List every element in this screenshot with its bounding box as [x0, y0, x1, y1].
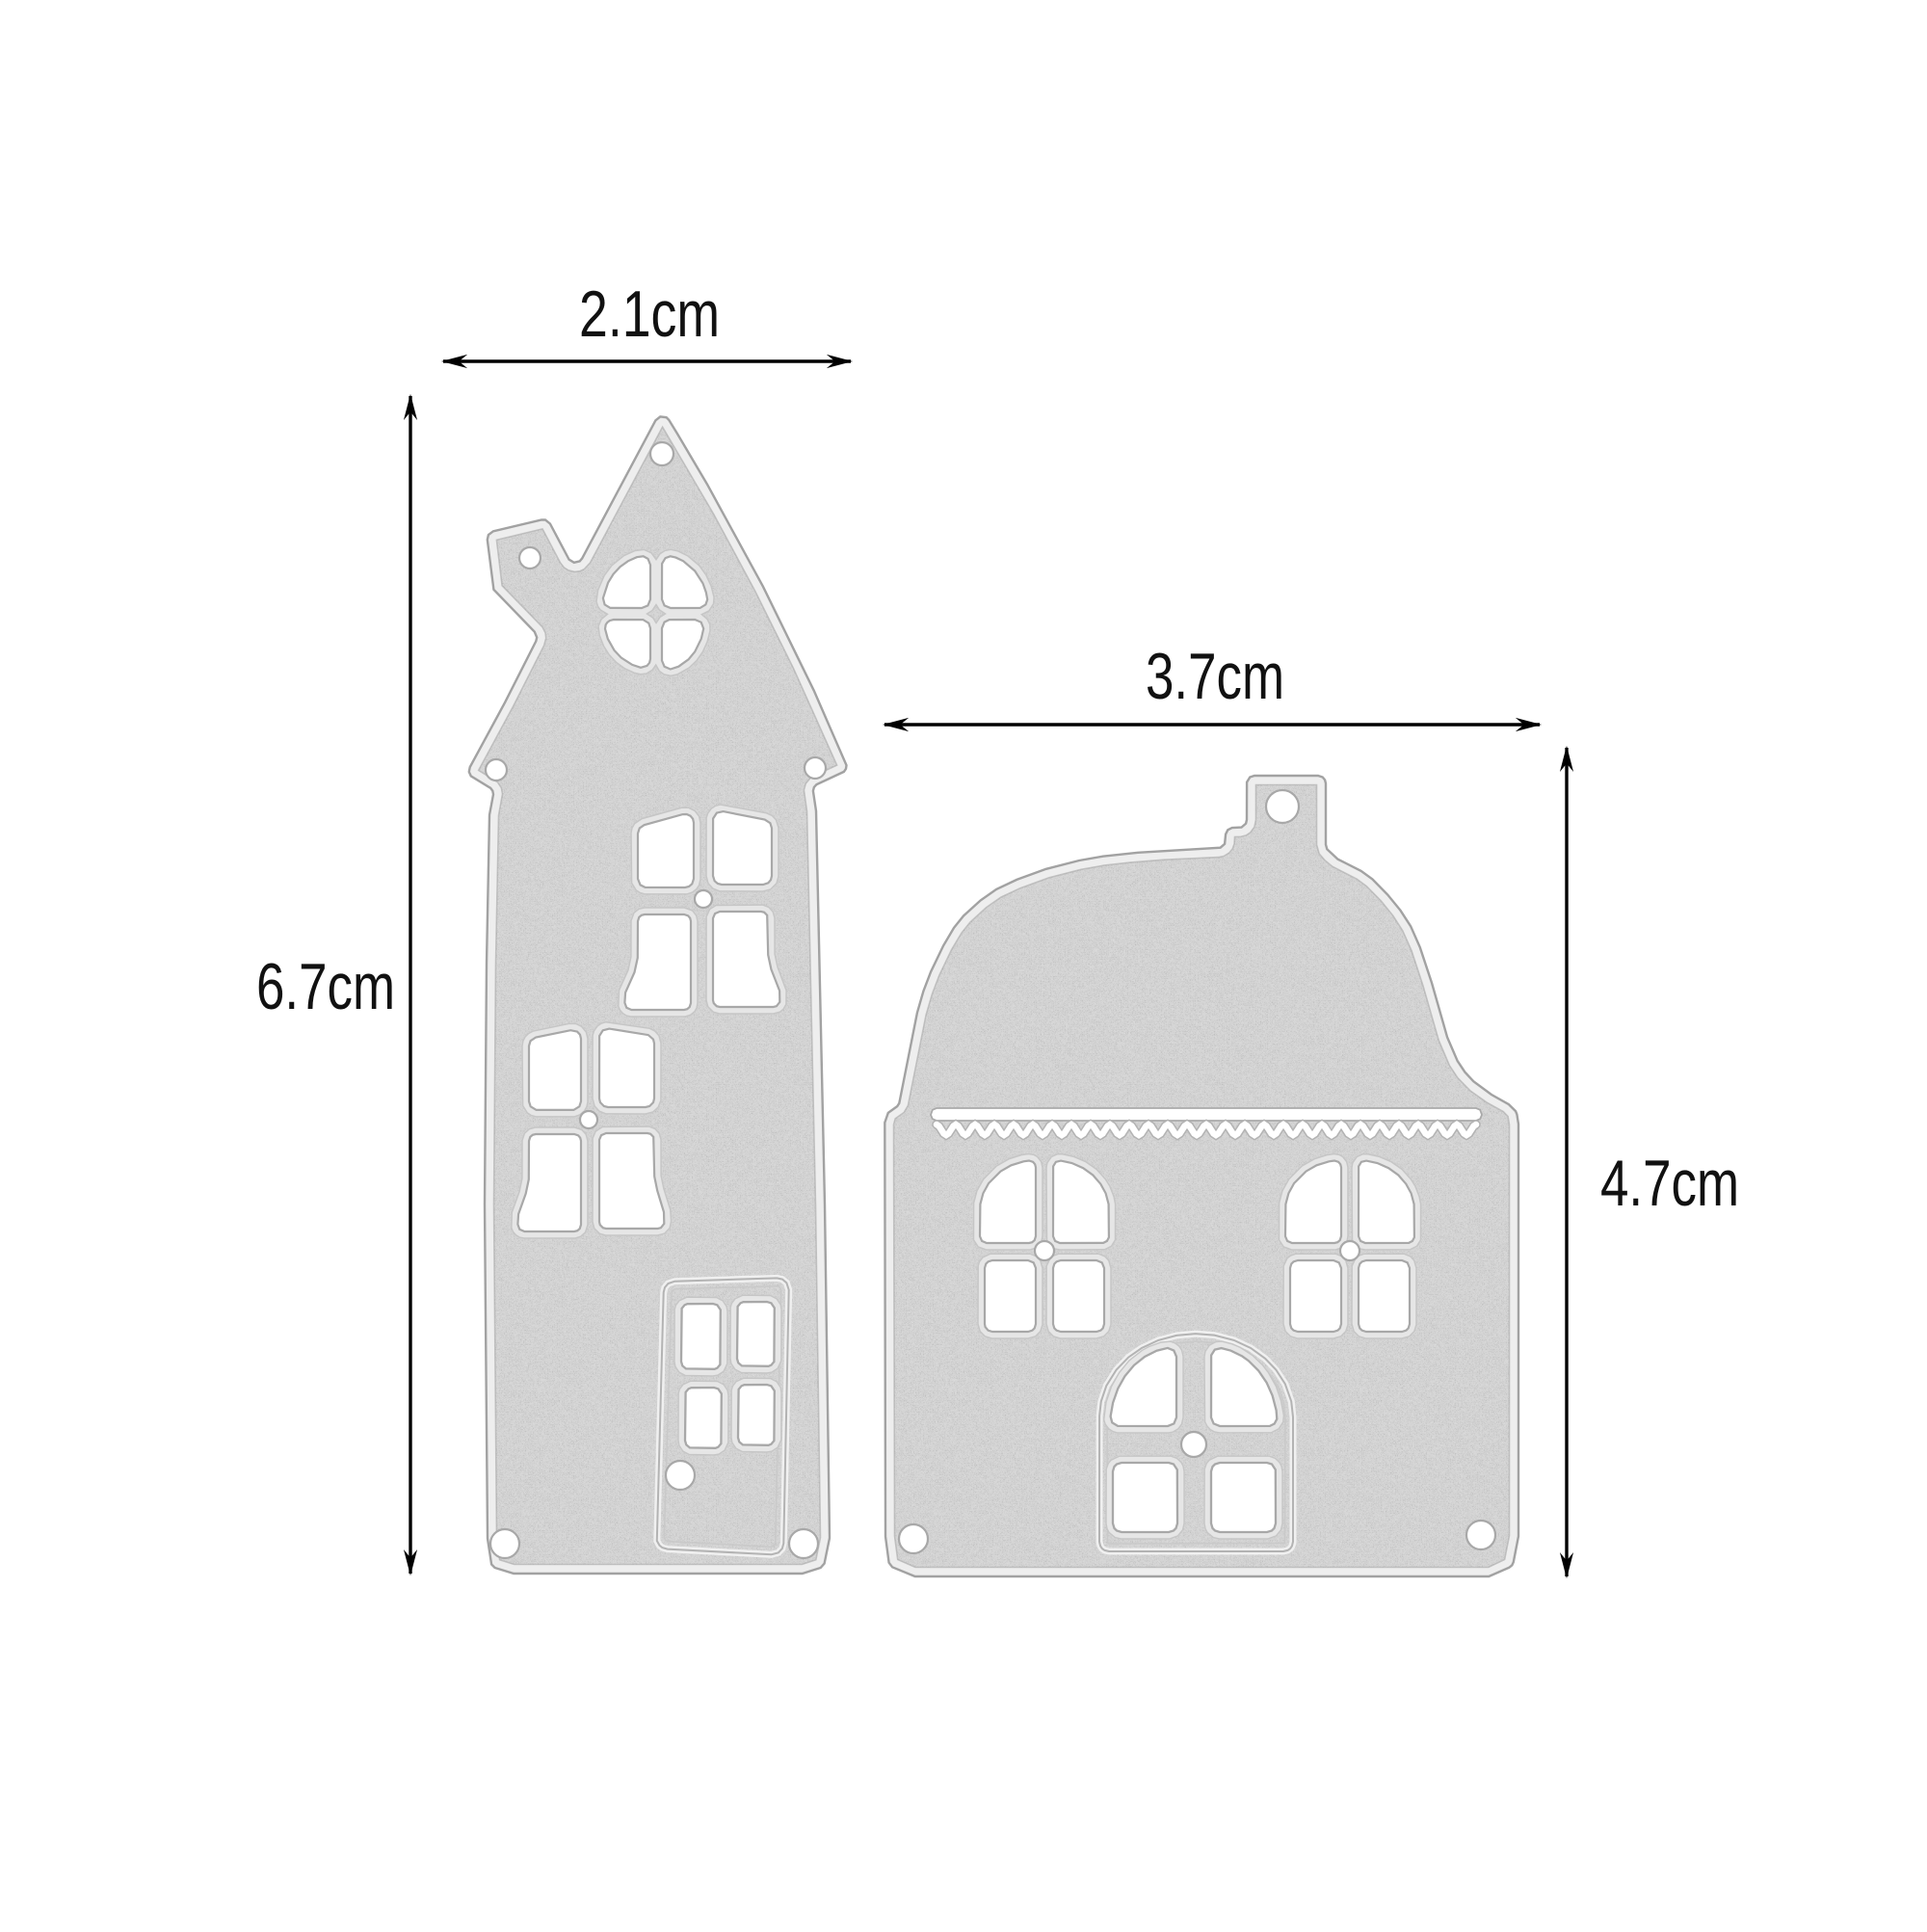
svg-text:6.7cm: 6.7cm: [256, 950, 395, 1023]
svg-text:4.7cm: 4.7cm: [1600, 1147, 1739, 1220]
svg-text:3.7cm: 3.7cm: [1146, 640, 1284, 713]
svg-text:2.1cm: 2.1cm: [579, 278, 720, 351]
